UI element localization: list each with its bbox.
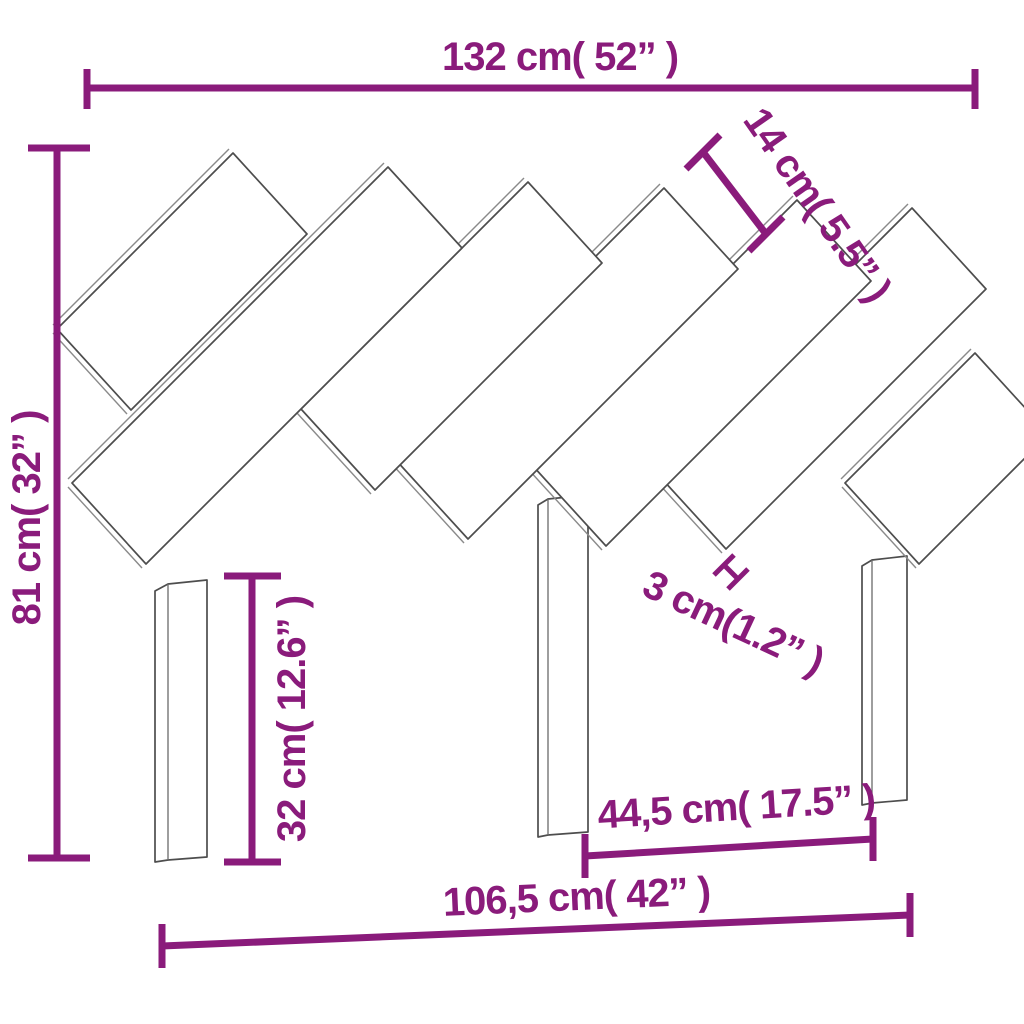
dimension-total-width: 132 cm( 52” ) (87, 35, 975, 109)
dimension-inner-leg-span: 44,5 cm( 17.5” ) (585, 777, 876, 878)
dimension-base-width: 106,5 cm( 42” ) (162, 869, 910, 968)
diagram-canvas: 132 cm( 52” ) 14 cm( 5.5” ) 81 cm( 32” )… (0, 0, 1024, 1024)
headboard-dimension-diagram: 132 cm( 52” ) 14 cm( 5.5” ) 81 cm( 32” )… (0, 0, 1024, 1024)
dimension-slat-gap: 3 cm(1.2” ) (636, 555, 830, 684)
dimension-label-total-width: 132 cm( 52” ) (442, 35, 678, 79)
leg-left (155, 580, 207, 862)
leg-right (862, 556, 907, 805)
dimension-label-leg-height: 32 cm( 12.6” ) (270, 596, 314, 842)
gap-tick-marker (714, 555, 748, 589)
leg-middle (538, 495, 588, 837)
dimension-label-total-height: 81 cm( 32” ) (5, 411, 49, 626)
dimension-total-height: 81 cm( 32” ) (5, 148, 90, 858)
dimension-label-base-width: 106,5 cm( 42” ) (442, 869, 711, 925)
dimension-label-inner-leg-span: 44,5 cm( 17.5” ) (596, 777, 876, 838)
dimension-leg-height: 32 cm( 12.6” ) (224, 576, 314, 862)
